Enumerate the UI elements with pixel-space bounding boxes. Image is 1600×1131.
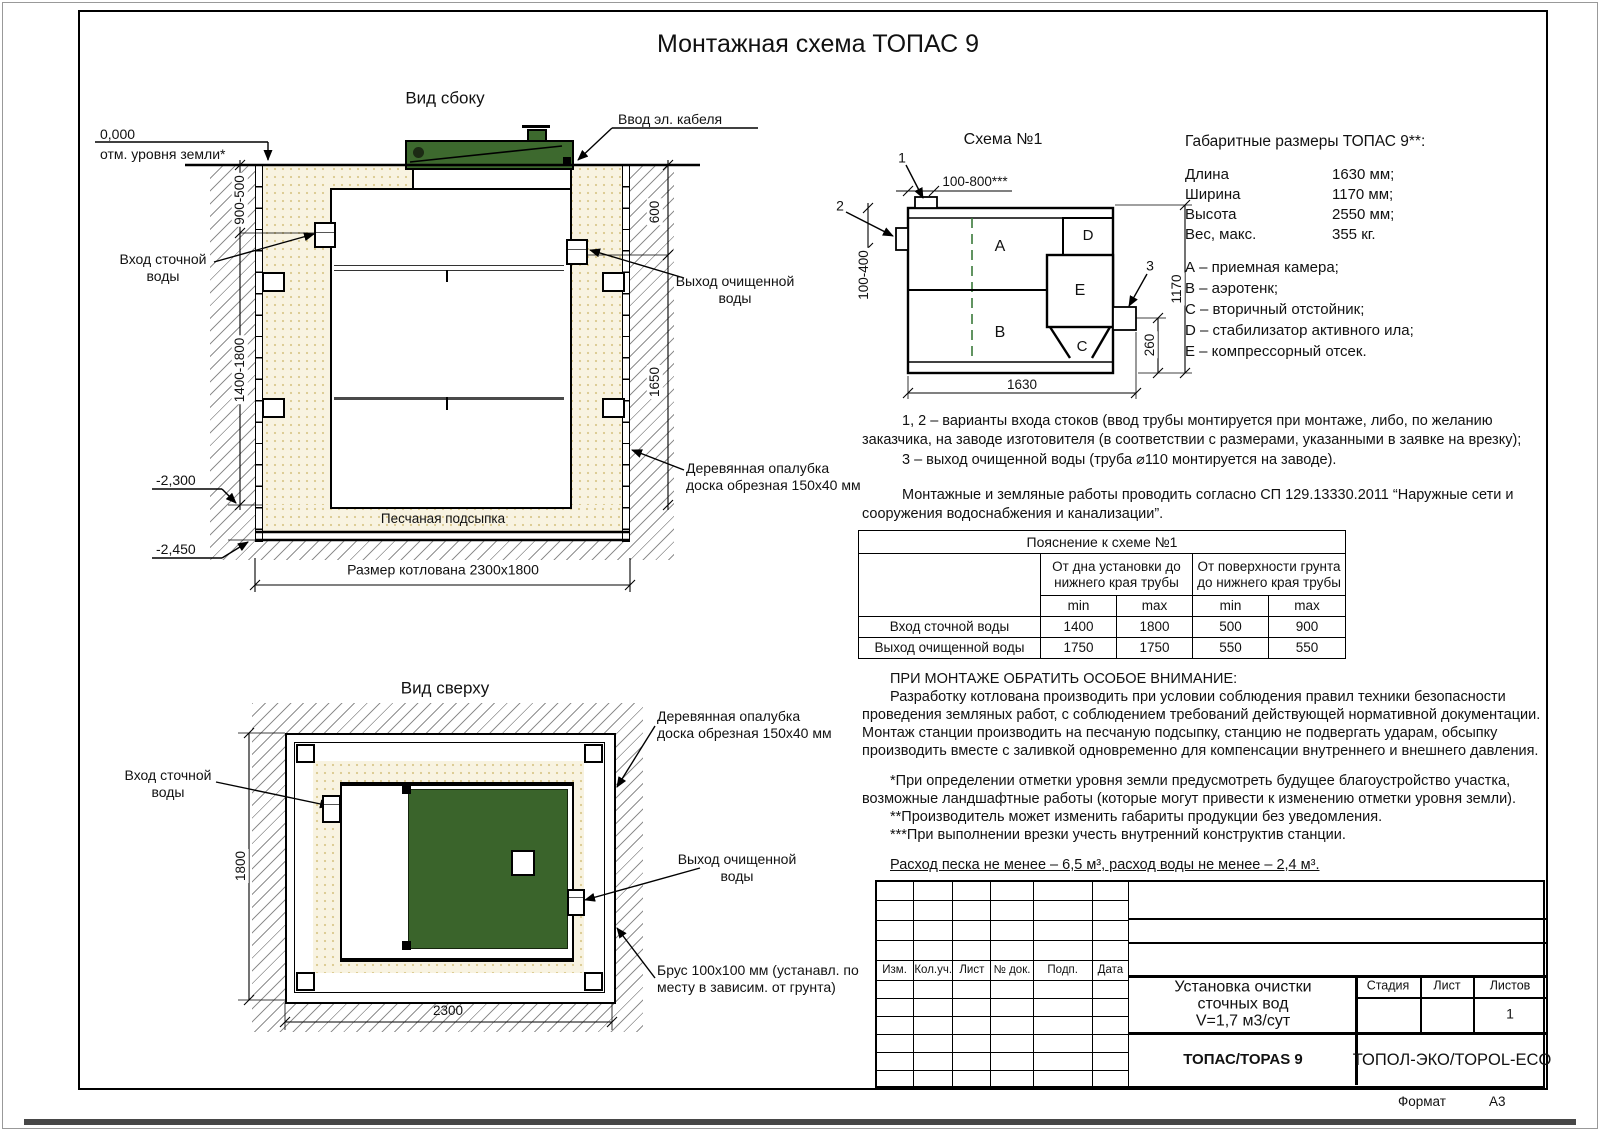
explanation-group2-header: От поверхности грунта до нижнего края тр…	[1193, 554, 1346, 596]
sheets-header: Листов	[1490, 978, 1531, 993]
side-sand-left	[263, 165, 330, 505]
top-inlet-stub	[322, 795, 341, 823]
schema-title: Схема №1	[964, 130, 1043, 150]
schema-comp-e: E	[1075, 281, 1086, 301]
cell: 500	[1193, 617, 1269, 638]
schema-dim-top: 100-800***	[942, 174, 1007, 190]
mark-2450-label: -2,450	[156, 541, 196, 558]
side-tank-body	[330, 188, 572, 509]
side-partition-2	[334, 397, 564, 400]
top-beam-label: Брус 100х100 мм (устанавл. по месту в за…	[657, 962, 859, 996]
doc-title: Установка очистки сточных вод V=1,7 м3/с…	[1174, 979, 1311, 1030]
schema-callout-3: 3	[1146, 257, 1154, 274]
schema-dim-right: 1170	[1169, 272, 1185, 305]
dim-1800-label: 1800	[233, 849, 249, 883]
side-view-title: Вид сбоку	[405, 89, 484, 110]
side-lug-left-upper	[262, 272, 285, 292]
explanation-table: Пояснение к схеме №1 От дна установки до…	[858, 530, 1346, 659]
attention-heading: ПРИ МОНТАЖЕ ОБРАТИТЬ ОСОБОЕ ВНИМАНИЕ:	[862, 670, 1542, 688]
side-outlet-stub	[566, 239, 588, 265]
schema-dim-outlet: 260	[1142, 332, 1158, 359]
stage-header: Стадия	[1367, 978, 1410, 993]
side-partition-1b	[334, 270, 564, 271]
company-name: ТОПОЛ-ЭКО/TOPOL-ECO	[1353, 1050, 1552, 1070]
legend-item-b: В – аэротенк;	[1185, 280, 1278, 298]
overall-row-name-1: Ширина	[1185, 186, 1240, 204]
cable-entry-label: Ввод эл. кабеля	[618, 111, 722, 128]
overall-row-name-2: Высота	[1185, 206, 1237, 224]
sand-bed-label: Песчаная подсыпка	[381, 511, 505, 527]
top-view-title: Вид сверху	[401, 679, 490, 700]
cell: 1750	[1041, 638, 1117, 659]
zero-mark-label: 0,000	[100, 126, 135, 143]
rev-header-koluch: Кол.уч.	[914, 961, 953, 981]
overall-row-name-0: Длина	[1185, 166, 1229, 184]
top-outlet-label: Выход очищенной воды	[678, 851, 797, 885]
schema-dim-bottom: 1630	[1007, 377, 1037, 393]
schema-dim-left: 100-400	[856, 248, 872, 302]
min-header: min	[1041, 596, 1117, 617]
side-inlet-stub	[314, 222, 336, 248]
side-formwork-plank-left	[255, 165, 263, 542]
side-earth-hatch-bottom	[255, 540, 630, 560]
cell: 1400	[1041, 617, 1117, 638]
schema-notes: 1, 2 – варианты входа стоков (ввод трубы…	[862, 412, 1540, 524]
note-sp: Монтажные и земляные работы проводить со…	[862, 486, 1540, 524]
dim-600-label: 600	[647, 199, 663, 226]
title-block: Изм. Кол.уч. Лист № док. Подп. Дата Уста…	[875, 880, 1545, 1088]
cell: 550	[1193, 638, 1269, 659]
overall-row-name-3: Вес, макс.	[1185, 226, 1256, 244]
row-label: Выход очищенной воды	[859, 638, 1041, 659]
legend-item-c: С – вторичный отстойник;	[1185, 301, 1364, 319]
explanation-group1-header: От дна установки до нижнего края трубы	[1041, 554, 1193, 596]
max-header: max	[1269, 596, 1346, 617]
overall-title: Габаритные размеры ТОПАС 9**:	[1185, 133, 1425, 152]
side-vent-cap	[522, 125, 550, 128]
top-lid-hinge-upper	[402, 785, 411, 794]
side-partition-1	[334, 265, 564, 266]
side-sand-right	[568, 165, 622, 505]
top-inlet-label: Вход сточной воды	[125, 767, 212, 801]
side-lug-right-lower	[602, 398, 625, 418]
attention-paragraph: Разработку котлована производить при усл…	[862, 688, 1542, 760]
consumption-note: Расход песка не менее – 6,5 м³, расход в…	[862, 856, 1542, 874]
sheet-title: Монтажная схема ТОПАС 9	[657, 29, 979, 60]
cell: 900	[1269, 617, 1346, 638]
format-label: Формат	[1398, 1094, 1446, 1110]
revision-table: Изм. Кол.уч. Лист № док. Подп. Дата	[875, 880, 1129, 1089]
explanation-table-corner	[859, 554, 1041, 617]
rev-header-ndok: № док.	[991, 961, 1033, 981]
side-formwork-label: Деревянная опалубка доска обрезная 150х4…	[686, 460, 861, 494]
sheet-header: Лист	[1433, 978, 1460, 993]
dim-900-500-label: 900-500	[232, 173, 248, 227]
rev-header-podp: Подп.	[1033, 961, 1092, 981]
mark-2300-label: -2,300	[156, 472, 196, 489]
overall-row-value-2: 2550 мм;	[1332, 206, 1394, 224]
format-value: А3	[1489, 1094, 1506, 1110]
top-outlet-stub	[567, 889, 585, 916]
cell: 550	[1269, 638, 1346, 659]
side-formwork-plank-right	[622, 165, 630, 542]
overall-row-value-1: 1170 мм;	[1332, 186, 1393, 204]
schema-comp-d: D	[1083, 227, 1094, 245]
side-outlet-label: Выход очищенной воды	[676, 273, 795, 307]
max-header: max	[1117, 596, 1193, 617]
overall-row-value-0: 1630 мм;	[1332, 166, 1394, 184]
attention-section: ПРИ МОНТАЖЕ ОБРАТИТЬ ОСОБОЕ ВНИМАНИЕ: Ра…	[862, 670, 1542, 874]
note-variants: 1, 2 – варианты входа стоков (ввод трубы…	[862, 412, 1540, 450]
cell: 1750	[1117, 638, 1193, 659]
table-row: Вход сточной воды 1400 1800 500 900	[859, 617, 1346, 638]
rev-header-izm: Изм.	[876, 961, 914, 981]
row-label: Вход сточной воды	[859, 617, 1041, 638]
top-lid-hinge-lower	[402, 941, 411, 950]
overall-row-value-3: 355 кг.	[1332, 226, 1376, 244]
attention-star3: ***При выполнении врезки учесть внутренн…	[862, 826, 1542, 844]
note-outlet: 3 – выход очищенной воды (труба ⌀110 мон…	[862, 451, 1540, 470]
dim-1650-label: 1650	[647, 365, 663, 399]
legend-item-a: А – приемная камера;	[1185, 259, 1339, 277]
rev-header-data: Дата	[1092, 961, 1128, 981]
schema-comp-b: B	[995, 323, 1006, 343]
min-header: min	[1193, 596, 1269, 617]
ground-note-label: отм. уровня земли*	[100, 146, 225, 163]
schema-comp-a: A	[995, 237, 1006, 257]
explanation-table-title: Пояснение к схеме №1	[859, 531, 1346, 554]
sheets-value: 1	[1506, 1005, 1514, 1022]
legend-item-d: D – стабилизатор активного ила;	[1185, 322, 1414, 340]
product-name: ТОПАС/TOPAS 9	[1183, 1051, 1303, 1069]
attention-star1: *При определении отметки уровня земли пр…	[862, 772, 1542, 808]
pit-size-label: Размер котлована 2300х1800	[347, 561, 539, 578]
schema-callout-2: 2	[836, 197, 844, 214]
attention-star2: **Производитель может изменить габариты …	[862, 808, 1542, 826]
side-cable-entry-point	[563, 157, 571, 165]
side-lug-right-upper	[602, 272, 625, 292]
schema-comp-c: C	[1077, 338, 1088, 356]
top-station-lid	[408, 789, 568, 949]
top-beam-corner-br	[584, 972, 603, 991]
side-inlet-label: Вход сточной воды	[120, 251, 207, 285]
drawing-sheet: Монтажная схема ТОПАС 9 Вид сбоку 0,000 …	[0, 0, 1600, 1131]
cell: 1800	[1117, 617, 1193, 638]
rev-header-list: Лист	[953, 961, 991, 981]
top-beam-corner-tl	[296, 744, 315, 763]
legend-item-e: Е – компрессорный отсек.	[1185, 343, 1367, 361]
dim-1400-1800-label: 1400-1800	[232, 336, 248, 405]
schema-callout-1: 1	[898, 149, 906, 166]
dim-2300-label: 2300	[433, 1003, 463, 1019]
top-beam-corner-bl	[296, 972, 315, 991]
side-lid	[405, 140, 574, 170]
side-lid-latch-icon	[413, 147, 424, 158]
page-bottom-shadow	[24, 1119, 1576, 1125]
top-hatch-window	[511, 850, 535, 876]
top-beam-corner-tr	[584, 744, 603, 763]
side-lug-left-lower	[262, 398, 285, 418]
table-row: Выход очищенной воды 1750 1750 550 550	[859, 638, 1346, 659]
top-formwork-label: Деревянная опалубка доска обрезная 150х4…	[657, 708, 832, 742]
